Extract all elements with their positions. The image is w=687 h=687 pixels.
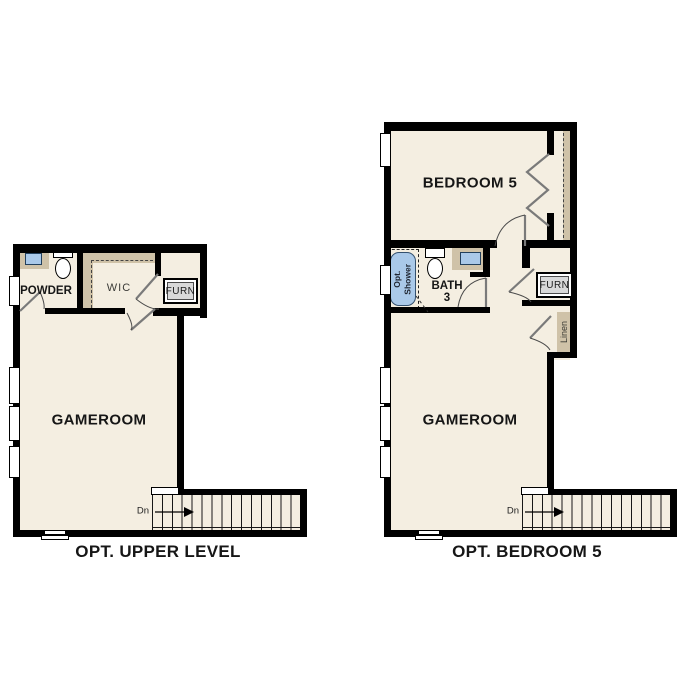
opt-shower-dashed-line (416, 296, 428, 312)
gameroom-label: GAMEROOM (423, 412, 518, 429)
gameroom-door-arc (127, 313, 132, 330)
gameroom-label: GAMEROOM (52, 412, 147, 429)
wic-door-arc (136, 299, 159, 309)
plan-title: OPT. UPPER LEVEL (75, 542, 240, 562)
powder-label: POWDER (20, 285, 72, 297)
linen-door-arc (530, 338, 550, 350)
linen-label: Linen (559, 321, 569, 343)
bath-label-line2: 3 (444, 292, 450, 304)
bedroom-label: BEDROOM 5 (423, 175, 517, 192)
floor-plan-canvas: FURN POWDER WIC GAMEROOM Dn OPT. UPPER L… (0, 0, 687, 687)
stairs-down-arrowhead (554, 507, 564, 517)
door-swing-overlay (0, 0, 687, 687)
plan-title: OPT. BEDROOM 5 (452, 542, 602, 562)
wic-door-leaf (136, 274, 158, 299)
linen-door-leaf (530, 316, 551, 338)
wic-label: WIC (107, 282, 131, 294)
furnace-door-arc (509, 292, 531, 302)
bifold-doors (527, 154, 549, 226)
stairs-down-label: Dn (507, 506, 519, 517)
bath-label-line1: BATH (431, 280, 462, 292)
stairs-down-arrowhead (184, 507, 194, 517)
gameroom-door-leaf (131, 309, 155, 330)
stairs-down-label: Dn (137, 506, 149, 517)
bedroom-door-arc (495, 215, 525, 246)
furnace-door-leaf (509, 269, 534, 292)
